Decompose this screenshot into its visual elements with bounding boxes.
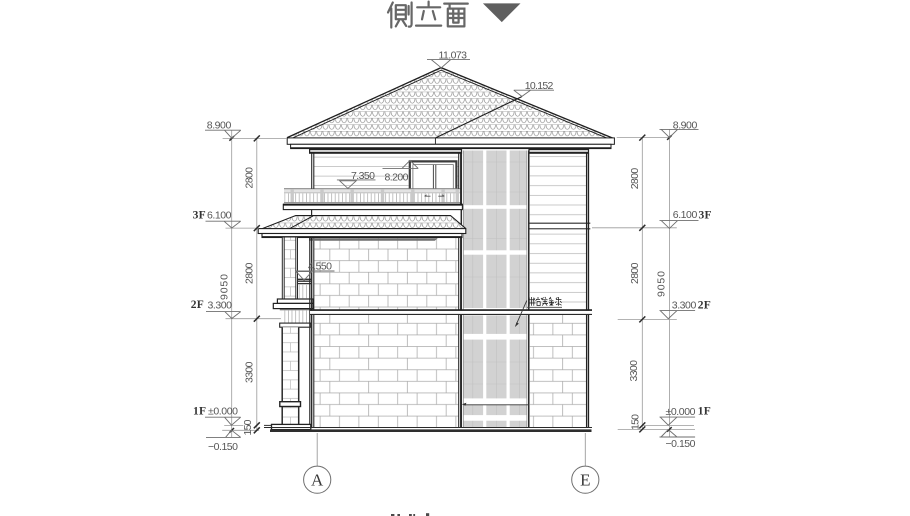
svg-text:6.100: 6.100	[207, 209, 232, 221]
svg-text:E: E	[580, 471, 590, 490]
svg-text:3.300: 3.300	[208, 299, 233, 311]
svg-text:2800: 2800	[244, 262, 256, 284]
svg-text:±0.000: ±0.000	[208, 405, 238, 417]
svg-text:±0.000: ±0.000	[666, 406, 696, 418]
svg-text:2F: 2F	[191, 299, 204, 311]
svg-text:150: 150	[630, 414, 642, 430]
svg-text:3.300: 3.300	[672, 300, 697, 312]
svg-text:3F: 3F	[193, 209, 206, 221]
svg-text:−0.150: −0.150	[666, 438, 696, 450]
svg-text:4.550: 4.550	[308, 260, 332, 272]
svg-text:A: A	[311, 471, 324, 490]
svg-text:8.900: 8.900	[207, 119, 232, 131]
svg-text:2800: 2800	[244, 167, 256, 189]
svg-text:2800: 2800	[629, 168, 641, 190]
svg-text:2F: 2F	[698, 299, 711, 311]
svg-text:−0.150: −0.150	[208, 441, 238, 453]
svg-text:9050: 9050	[656, 271, 668, 297]
svg-text:3F: 3F	[699, 210, 712, 222]
svg-text:8.200: 8.200	[385, 171, 409, 183]
svg-text:1F: 1F	[698, 405, 711, 417]
svg-text:6.100: 6.100	[673, 209, 698, 221]
svg-text:8.900: 8.900	[673, 119, 698, 131]
svg-text:2800: 2800	[629, 262, 641, 284]
svg-text:9050: 9050	[218, 274, 230, 300]
svg-text:3300: 3300	[244, 361, 256, 383]
svg-text:150: 150	[242, 419, 254, 435]
svg-text:3300: 3300	[628, 360, 640, 382]
svg-text:1F: 1F	[193, 405, 206, 417]
